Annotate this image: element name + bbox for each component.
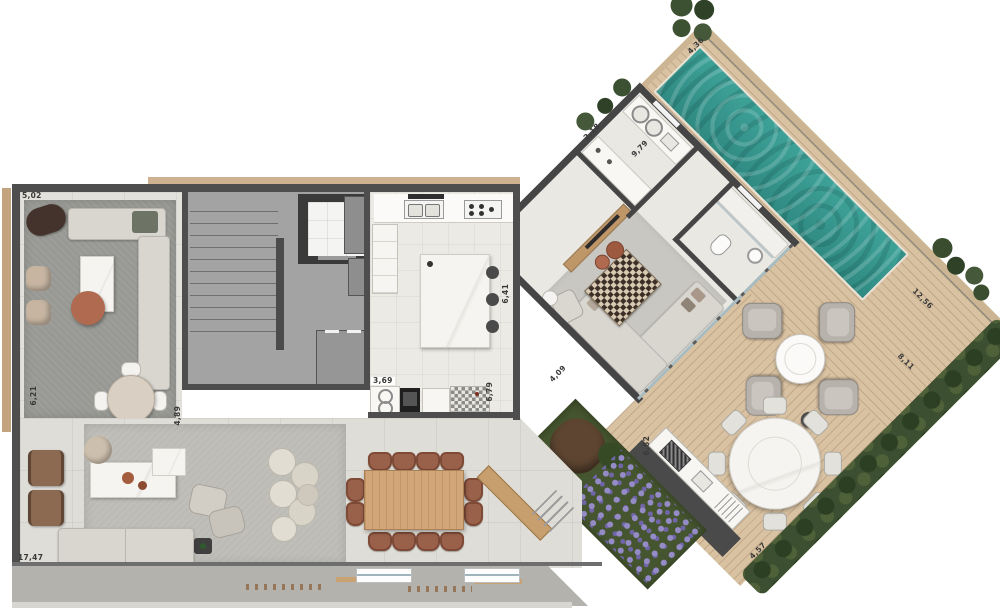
sink-basin xyxy=(425,204,440,217)
dining-chair-wood xyxy=(346,502,365,526)
balcony-window xyxy=(464,568,520,583)
faucet-icon xyxy=(606,158,613,165)
kitchen-island xyxy=(420,254,490,348)
leather-armchair xyxy=(28,450,64,486)
bar-stool xyxy=(486,266,499,279)
stair-divider-wall xyxy=(276,238,284,350)
wine-dot xyxy=(475,392,479,396)
dimension-label: 3,69 xyxy=(371,377,395,385)
dimension-label: 5,02 xyxy=(22,192,42,200)
tall-cabinet xyxy=(372,224,398,294)
bar-stool xyxy=(486,320,499,333)
dining-chair-wood xyxy=(392,452,416,471)
dining-chair-wood xyxy=(346,478,365,502)
range-hood xyxy=(408,194,444,199)
dining-chair xyxy=(763,513,787,531)
left-planter-trim xyxy=(2,188,11,432)
cooktop xyxy=(464,200,502,219)
pouf xyxy=(26,300,51,325)
laundry-sink xyxy=(660,132,680,152)
oven-appliance xyxy=(400,388,420,412)
faucet-icon xyxy=(595,147,602,154)
balcony-window xyxy=(356,568,412,583)
burner xyxy=(469,211,474,216)
sofa-throw xyxy=(132,211,158,233)
dimension-label: 4,89 xyxy=(174,406,182,426)
exterior-wall-left xyxy=(12,184,20,570)
island-faucet xyxy=(427,261,433,267)
sink-basin xyxy=(408,204,423,217)
nook-round-table xyxy=(107,375,155,423)
stair-wall-left xyxy=(182,192,188,388)
chair-cushion xyxy=(825,387,853,409)
table-inner-ring xyxy=(778,336,823,381)
dining-chair-wood xyxy=(464,502,483,526)
dining-chair-wood xyxy=(440,452,464,471)
table-pouf xyxy=(84,436,112,464)
terrace-armchair xyxy=(819,379,859,415)
exterior-wall-bottom-line xyxy=(12,562,602,566)
balcony-dash-strip xyxy=(246,584,324,590)
living-sofa-side xyxy=(138,236,170,390)
dining-chair-wood xyxy=(368,452,392,471)
dining-chair-wood xyxy=(368,532,392,551)
bar-stool xyxy=(486,293,499,306)
pouf xyxy=(26,266,51,291)
pouf-cluster-pouf xyxy=(271,516,297,542)
burner xyxy=(489,207,494,212)
coffee-table-extension xyxy=(152,448,186,476)
dimension-label: 6,79 xyxy=(486,382,494,402)
service-door xyxy=(347,330,361,333)
terrace-armchair xyxy=(742,303,782,339)
dining-chair xyxy=(763,397,787,415)
chair-cushion xyxy=(827,308,849,336)
burner xyxy=(479,211,484,216)
balcony-dash-strip xyxy=(408,586,472,592)
kitchen-wall-right xyxy=(513,192,520,420)
shrub xyxy=(690,0,718,24)
stair-wall-bottom xyxy=(182,384,370,390)
dining-chair-wood xyxy=(440,532,464,551)
dimension-label: 17,47 xyxy=(18,554,43,562)
dimension-label: 4,09 xyxy=(548,364,567,383)
grill-sink-icon xyxy=(691,470,714,493)
dimension-label: 6,41 xyxy=(502,284,510,304)
leather-armchair xyxy=(28,490,64,526)
service-counter xyxy=(370,386,400,414)
oven-door xyxy=(403,392,417,406)
wood-dining-table xyxy=(364,470,464,530)
pantry-mosaic-floor xyxy=(450,386,490,414)
copper-bowl xyxy=(138,481,147,490)
service-door xyxy=(325,330,339,333)
service-rooms xyxy=(316,330,370,388)
dining-chair xyxy=(824,452,842,476)
balcony-outer-lip xyxy=(12,602,572,608)
copper-round-table xyxy=(71,291,105,325)
drinks-table xyxy=(194,538,212,554)
top-wood-trim xyxy=(148,177,520,184)
bottle-icon xyxy=(200,543,206,549)
base-cabinet xyxy=(422,388,450,414)
burner xyxy=(469,204,474,209)
exterior-wall-top xyxy=(12,184,520,192)
dining-chair-wood xyxy=(416,532,440,551)
sofa-pillow xyxy=(680,297,696,313)
dimension-label: 6,21 xyxy=(30,386,38,406)
dining-chair-wood xyxy=(416,452,440,471)
sofa-pillow xyxy=(690,287,706,303)
terrace-armchair xyxy=(819,302,855,342)
floor-plan-canvas: 5,02 6,21 17,47 4,89 3,69 6,79 6,41 4,09… xyxy=(0,0,1000,610)
chair-cushion xyxy=(748,309,776,331)
dimension-label: 6,62 xyxy=(643,436,651,456)
pouf-cluster-pouf xyxy=(297,484,319,506)
staircase-treads xyxy=(190,200,278,332)
dining-chair-wood xyxy=(392,532,416,551)
double-sink xyxy=(404,200,444,219)
copper-bowl xyxy=(122,472,134,484)
burner xyxy=(479,204,484,209)
